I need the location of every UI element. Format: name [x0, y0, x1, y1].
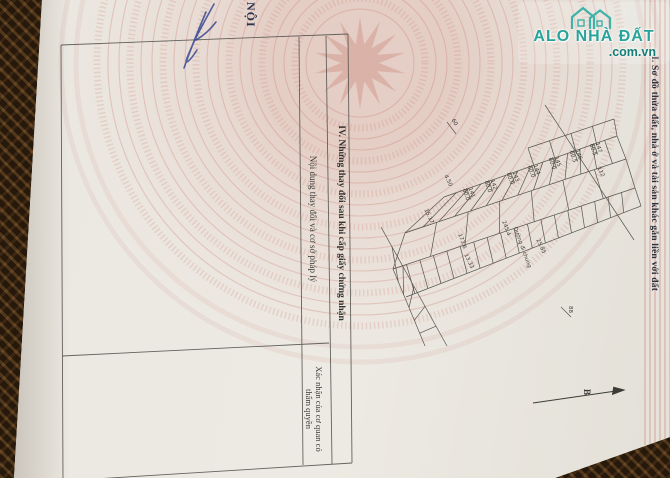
changes-col2-header: Xác nhận của cơ quan có thẩm quyền [303, 357, 323, 461]
photo-of-land-certificate: I. Sơ đồ thửa đất, nhà ở và tài sản khác… [0, 0, 670, 478]
changes-table-title: IV. Những thay đổi sau khi cấp giấy chứn… [336, 98, 346, 348]
north-label: B [582, 389, 592, 395]
section-heading: I. Sơ đồ thửa đất, nhà ở và tài sản khác… [649, 56, 659, 360]
document-line-art [0, 0, 670, 478]
certificate-page: I. Sơ đồ thửa đất, nhà ở và tài sản khác… [0, 0, 670, 478]
alo-nha-dat-watermark: ALO NHÀ ĐẤT .com.vn [518, 2, 670, 64]
changes-col1-header: Nội dung thay đổi và cơ sở pháp lý [308, 106, 318, 332]
watermark-domain: .com.vn [518, 45, 670, 59]
handwritten-note: NỘI [243, 2, 258, 44]
plot-label: 88 [567, 306, 573, 313]
north-arrow [533, 387, 624, 403]
cadastral-sketch-lines [381, 105, 641, 346]
watermark-brand: ALO NHÀ ĐẤT [518, 28, 670, 46]
